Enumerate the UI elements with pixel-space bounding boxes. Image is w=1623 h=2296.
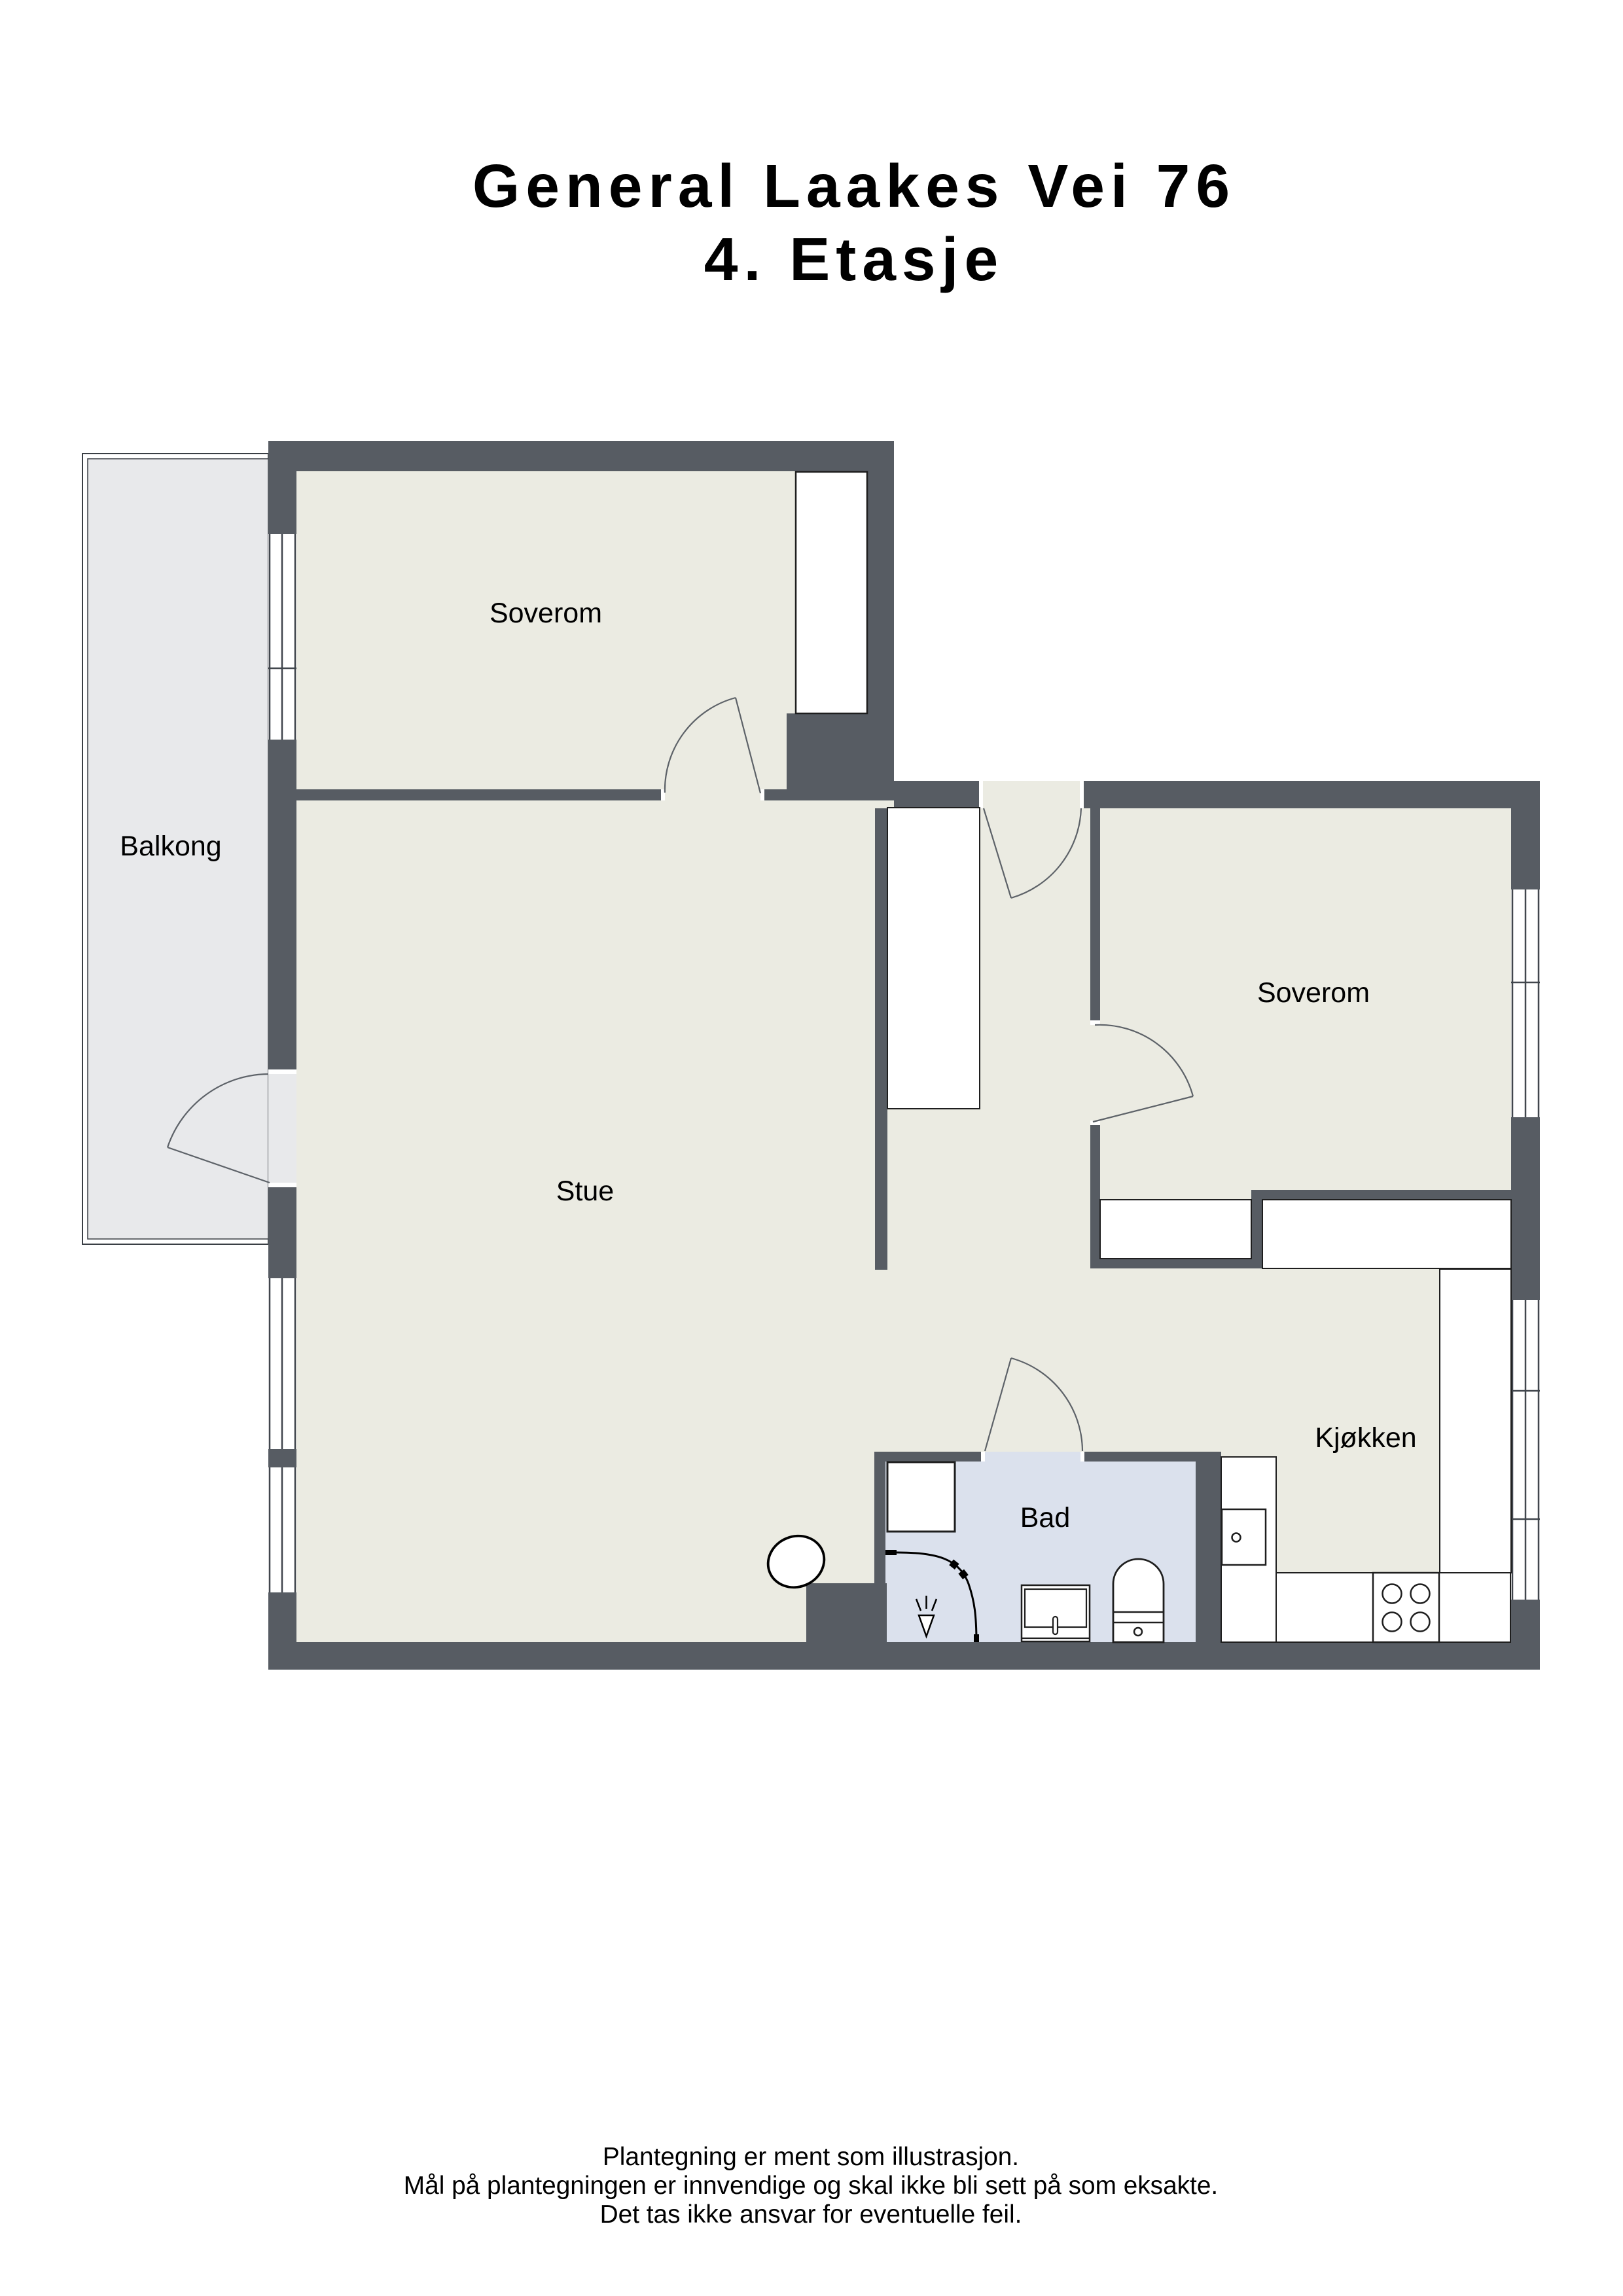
svg-text:Balkong: Balkong: [120, 831, 221, 862]
svg-text:Det tas ikke ansvar for eventu: Det tas ikke ansvar for eventuelle feil.: [600, 2200, 1022, 2229]
svg-text:Mål på plantegningen er innven: Mål på plantegningen er innvendige og sk…: [404, 2172, 1218, 2200]
svg-text:Stue: Stue: [556, 1175, 614, 1207]
svg-text:Soverom: Soverom: [490, 598, 602, 629]
svg-text:4. Etasje: 4. Etasje: [704, 225, 1004, 293]
svg-text:General Laakes Vei 76: General Laakes Vei 76: [473, 152, 1236, 220]
svg-text:Kjøkken: Kjøkken: [1315, 1422, 1416, 1454]
svg-text:Plantegning er ment som illust: Plantegning er ment som illustrasjon.: [603, 2143, 1019, 2171]
svg-text:Soverom: Soverom: [1257, 977, 1370, 1009]
svg-text:Bad: Bad: [1020, 1502, 1071, 1534]
